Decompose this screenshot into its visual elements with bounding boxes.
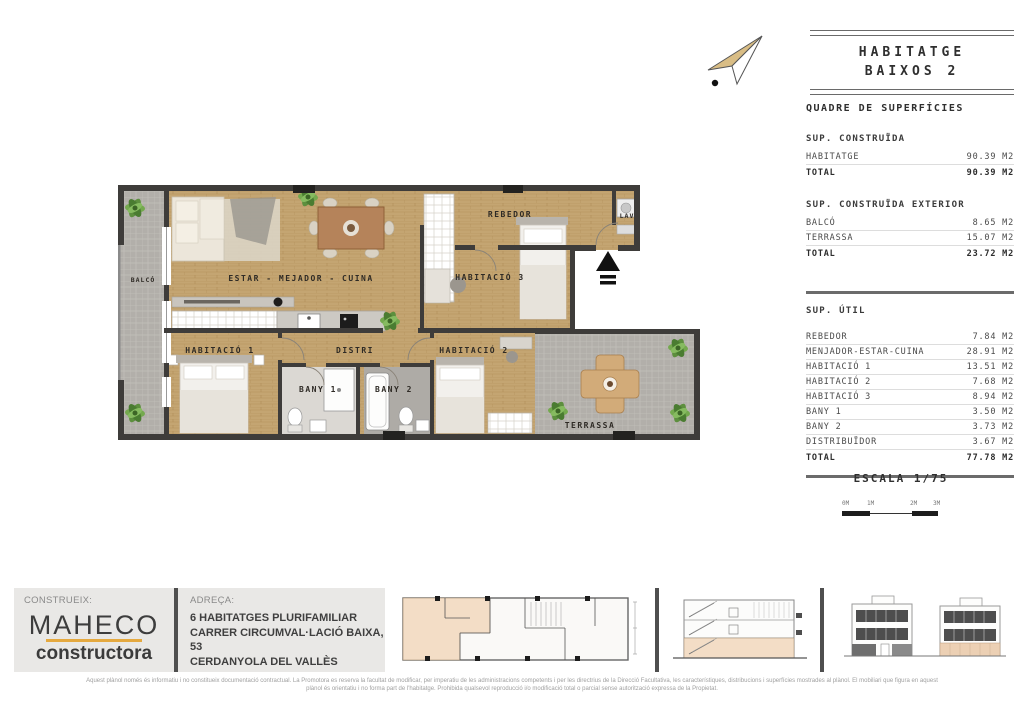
table-row: HABITACIÓ 3 8.94 M2 [806, 390, 1014, 405]
brand-name: MAHECO [14, 610, 174, 641]
row-value: 7.68 M2 [973, 377, 1014, 387]
section-header: SUP. CONSTRUÏDA [806, 134, 1014, 144]
plan-sheet: HABITATGE BAIXOS 2 QUADRE DE SUPERFÍCIES… [0, 0, 1024, 705]
table-row: HABITACIÓ 2 7.68 M2 [806, 375, 1014, 390]
scale-label: ESCALA 1/75 [826, 472, 976, 485]
row-label: MENJADOR-ESTAR-CUINA [806, 347, 924, 357]
surface-table: QUADRE DE SUPERFÍCIES SUP. CONSTRUÏDA HA… [806, 103, 1014, 478]
room-label-lav: LAV [620, 212, 635, 220]
address-line: CARRER CIRCUMVAL·LACIÓ BAIXA, 53 [190, 626, 385, 655]
row-label: TOTAL [806, 249, 836, 259]
row-label: TOTAL [806, 453, 836, 463]
scale-bar: 0M 1M 2M 3M [842, 500, 942, 520]
row-label: HABITACIÓ 2 [806, 377, 871, 387]
row-label: REBEDOR [806, 332, 847, 342]
row-value: 15.07 M2 [967, 233, 1014, 243]
row-value: 3.50 M2 [973, 407, 1014, 417]
north-arrow-icon [700, 30, 770, 92]
row-label: HABITACIÓ 3 [806, 392, 871, 402]
table-row: HABITACIÓ 1 13.51 M2 [806, 360, 1014, 375]
scale-tick: 1M [867, 500, 874, 507]
facade-thumbnails [824, 588, 1010, 672]
table-row-total: TOTAL 77.78 M2 [806, 450, 1014, 465]
builder-panel: CONSTRUEIX: MAHECO constructora [14, 588, 174, 672]
title-rule-bottom [810, 89, 1014, 95]
room-label-estar: ESTAR - MEJADOR - CUINA [228, 274, 373, 283]
table-row: REBEDOR 7.84 M2 [806, 330, 1014, 345]
row-value: 90.39 M2 [967, 152, 1014, 162]
table-row: MENJADOR-ESTAR-CUINA 28.91 M2 [806, 345, 1014, 360]
scale-segment [842, 511, 870, 516]
row-value: 28.91 M2 [967, 347, 1014, 357]
row-label: BANY 2 [806, 422, 842, 432]
row-label: BALCÓ [806, 218, 836, 228]
table-row: DISTRIBUÏDOR 3.67 M2 [806, 435, 1014, 450]
scale-tick: 3M [933, 500, 940, 507]
keyplan-thumbnail [385, 588, 655, 672]
construeix-label: CONSTRUEIX: [24, 595, 92, 606]
table-row: BALCÓ 8.65 M2 [806, 216, 1014, 231]
scale-tick: 0M [842, 500, 849, 507]
row-value: 3.73 M2 [973, 422, 1014, 432]
room-label-bany1: BANY 1 [299, 385, 337, 394]
address-line: CERDANYOLA DEL VALLÈS [190, 655, 385, 670]
sheet-title-line1: HABITATGE [810, 43, 1014, 62]
address-panel: ADREÇA: 6 HABITATGES PLURIFAMILIAR CARRE… [178, 588, 385, 672]
disclaimer-line: plànol és orientatiu i no forma part de … [14, 685, 1010, 693]
footer-strip: CONSTRUEIX: MAHECO constructora ADREÇA: … [14, 588, 1010, 672]
room-label-distri: DISTRI [336, 346, 374, 355]
row-value: 7.84 M2 [973, 332, 1014, 342]
section-panel [659, 588, 820, 672]
row-label: BANY 1 [806, 407, 842, 417]
row-label: TERRASSA [806, 233, 853, 243]
row-value: 3.67 M2 [973, 437, 1014, 447]
scale-segment [912, 511, 938, 516]
surface-table-title: QUADRE DE SUPERFÍCIES [806, 103, 1014, 114]
row-label: HABITACIÓ 1 [806, 362, 871, 372]
section-sup-util: SUP. ÚTIL REBEDOR 7.84 M2 MENJADOR-ESTAR… [806, 306, 1014, 465]
row-label: DISTRIBUÏDOR [806, 437, 877, 447]
table-row-total: TOTAL 23.72 M2 [806, 246, 1014, 261]
row-label: HABITATGE [806, 152, 859, 162]
table-row: BANY 2 3.73 M2 [806, 420, 1014, 435]
scale-tick: 2M [910, 500, 917, 507]
entrance-arrow-icon [596, 251, 620, 285]
room-label-bany2: BANY 2 [375, 385, 413, 394]
room-label-terrassa: TERRASSA [565, 421, 616, 430]
row-value: 23.72 M2 [967, 249, 1014, 259]
scale-segment [870, 513, 912, 514]
balcony-floor [118, 185, 168, 440]
table-row: BANY 1 3.50 M2 [806, 405, 1014, 420]
section-thumbnail [659, 588, 820, 672]
row-value: 13.51 M2 [967, 362, 1014, 372]
section-sup-construida-exterior: SUP. CONSTRUÏDA EXTERIOR BALCÓ 8.65 M2 T… [806, 200, 1014, 261]
sheet-title-box: HABITATGE BAIXOS 2 [810, 30, 1014, 95]
row-value: 8.65 M2 [973, 218, 1014, 228]
table-row: TERRASSA 15.07 M2 [806, 231, 1014, 246]
row-value: 90.39 M2 [967, 168, 1014, 178]
room-label-balco: BALCÓ [131, 275, 156, 284]
disclaimer-line: Aquest plànol només és informatiu i no c… [14, 677, 1010, 685]
room-label-hab3: HABITACIÓ 3 [455, 271, 524, 282]
room-label-hab1: HABITACIÓ 1 [185, 344, 254, 355]
brand-subtitle: constructora [14, 643, 174, 665]
section-sup-construida: SUP. CONSTRUÏDA HABITATGE 90.39 M2 TOTAL… [806, 134, 1014, 180]
row-value: 8.94 M2 [973, 392, 1014, 402]
section-header: SUP. ÚTIL [806, 306, 1014, 316]
row-value: 77.78 M2 [967, 453, 1014, 463]
brand-underline [46, 639, 142, 642]
table-row: HABITATGE 90.39 M2 [806, 150, 1014, 165]
adreca-label: ADREÇA: [190, 595, 234, 606]
row-label: TOTAL [806, 168, 836, 178]
section-header: SUP. CONSTRUÏDA EXTERIOR [806, 200, 1014, 210]
floor-plan: BALCÓ ESTAR - MEJADOR - CUINA REBEDOR LA… [118, 185, 700, 440]
keyplan-panel [385, 588, 655, 672]
section-separator [806, 291, 1014, 294]
facades-panel [824, 588, 1010, 672]
room-label-hab2: HABITACIÓ 2 [439, 344, 508, 355]
room-label-rebedor: REBEDOR [488, 210, 532, 219]
table-row-total: TOTAL 90.39 M2 [806, 165, 1014, 180]
address-line: 6 HABITATGES PLURIFAMILIAR [190, 611, 385, 626]
disclaimer: Aquest plànol només és informatiu i no c… [14, 677, 1010, 693]
sheet-title-line2: BAIXOS 2 [810, 62, 1014, 81]
